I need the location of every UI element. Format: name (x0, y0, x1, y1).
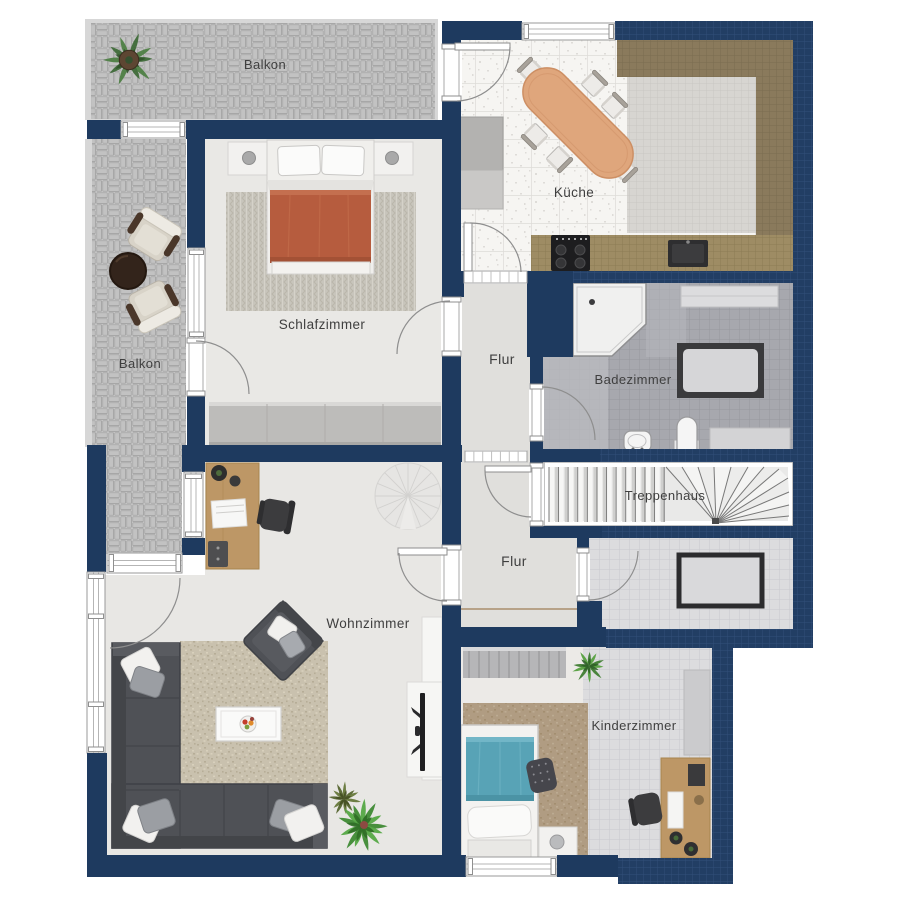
svg-text:Schlafzimmer: Schlafzimmer (279, 317, 366, 332)
svg-text:Badezimmer: Badezimmer (595, 372, 672, 387)
svg-text:Balkon: Balkon (119, 356, 161, 371)
svg-text:Kinderzimmer: Kinderzimmer (592, 718, 677, 733)
svg-text:Flur: Flur (489, 351, 515, 367)
svg-text:Flur: Flur (501, 553, 527, 569)
svg-text:Balkon: Balkon (244, 57, 286, 72)
svg-text:Wohnzimmer: Wohnzimmer (326, 616, 409, 631)
svg-text:Treppenhaus: Treppenhaus (625, 488, 706, 503)
svg-text:Küche: Küche (554, 185, 594, 200)
